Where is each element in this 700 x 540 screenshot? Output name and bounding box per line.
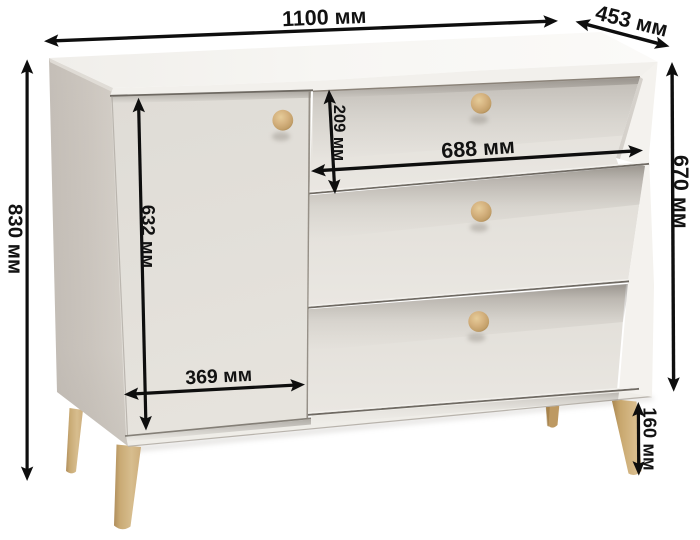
- svg-text:830 мм: 830 мм: [3, 204, 26, 274]
- svg-text:688 мм: 688 мм: [440, 134, 515, 163]
- svg-text:369 мм: 369 мм: [185, 364, 253, 389]
- svg-text:209 мм: 209 мм: [330, 105, 348, 162]
- svg-text:632 мм: 632 мм: [138, 205, 159, 268]
- svg-text:670 мм: 670 мм: [669, 155, 693, 229]
- svg-text:1100 мм: 1100 мм: [282, 4, 367, 31]
- svg-text:160 мм: 160 мм: [640, 407, 661, 470]
